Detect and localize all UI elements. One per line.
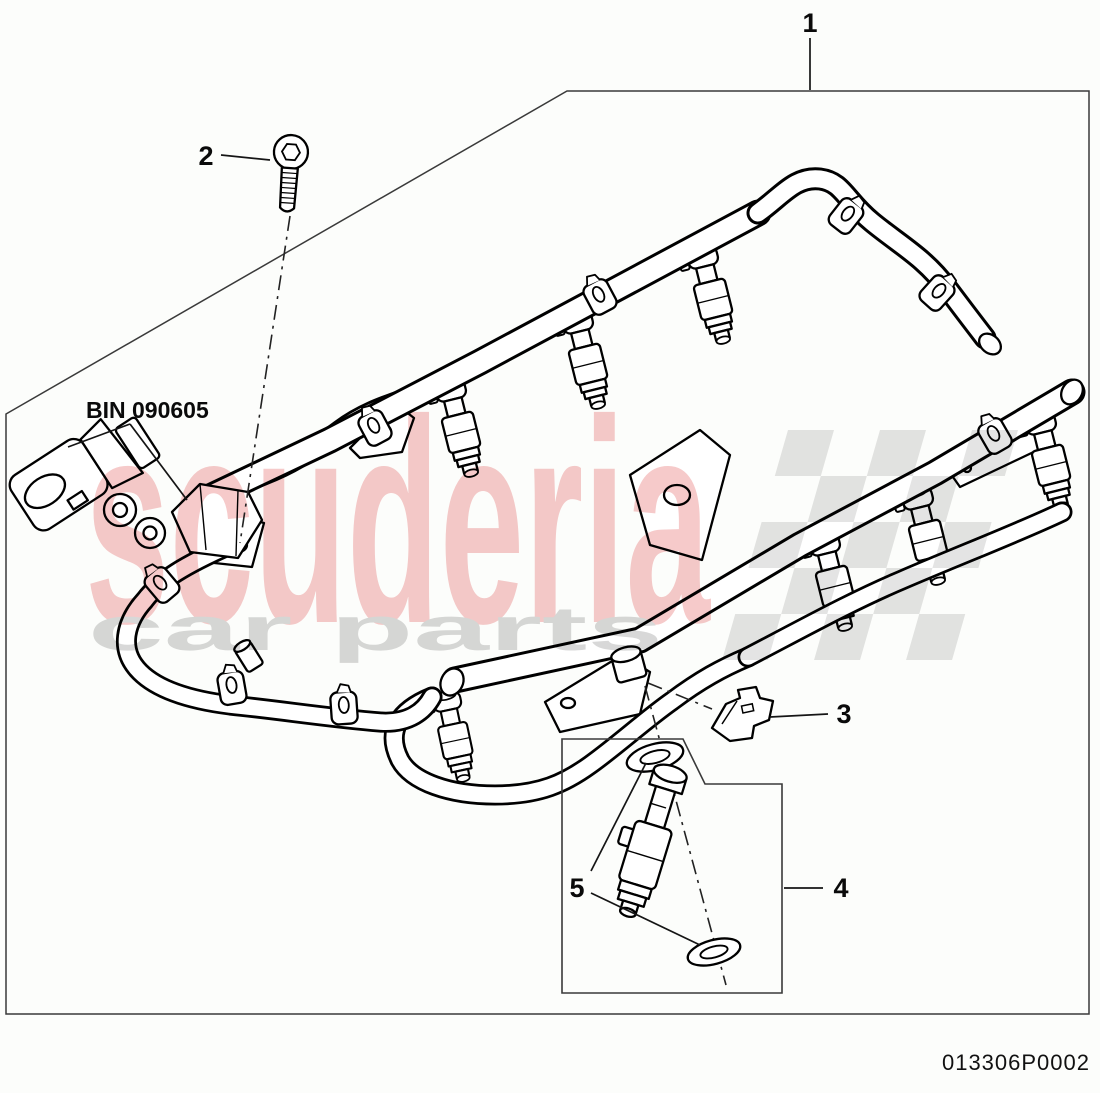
parts-diagram-canvas: scuderia car parts xyxy=(0,0,1100,1093)
callout-5: 5 xyxy=(569,873,584,903)
hose-clamp-8 xyxy=(329,683,358,725)
watermark-flag xyxy=(722,430,1018,660)
part-code: 013306P0002 xyxy=(942,1050,1090,1075)
watermark-subtext: car parts xyxy=(88,595,663,664)
detail-injector xyxy=(598,757,691,921)
bin-service-label: BIN 090605 xyxy=(86,397,209,423)
watermark: scuderia car parts xyxy=(85,360,1018,684)
callout-3: 3 xyxy=(836,699,851,729)
retaining-clip xyxy=(712,687,773,741)
mounting-bolt xyxy=(270,134,309,213)
callout-2: 2 xyxy=(198,141,213,171)
o-ring-bottom xyxy=(685,933,743,970)
crossover-hose-top xyxy=(758,179,1005,359)
leader-3 xyxy=(770,714,828,717)
parts-diagram-page: scuderia car parts xyxy=(0,0,1100,1093)
callout-1: 1 xyxy=(802,8,817,38)
leader-2 xyxy=(221,155,270,160)
callout-4: 4 xyxy=(833,873,848,903)
